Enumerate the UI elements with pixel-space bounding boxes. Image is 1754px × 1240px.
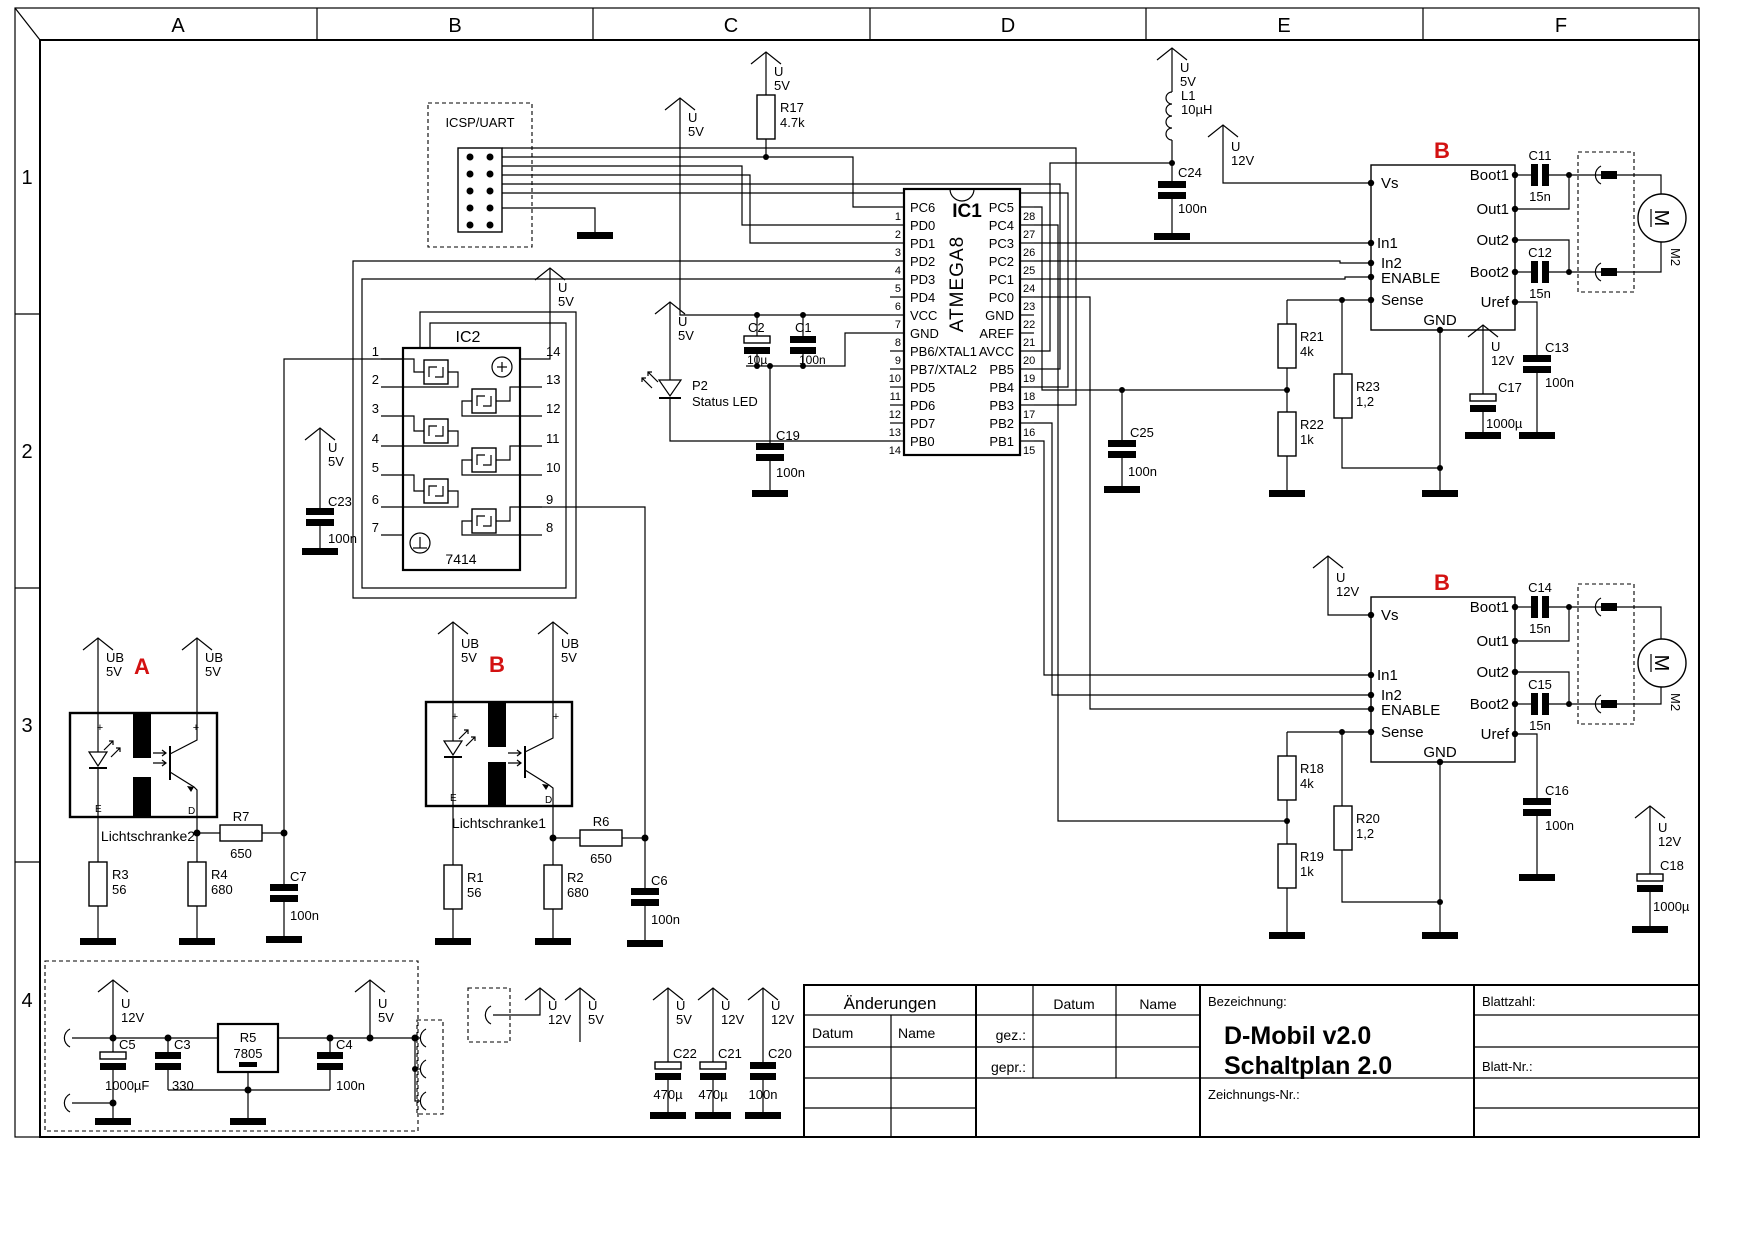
ic1-part: ATMEGA8 [947, 236, 968, 332]
svg-text:AVCC: AVCC [979, 344, 1014, 359]
tb-zeichnungs-nr: Zeichnungs-Nr.: [1208, 1087, 1300, 1102]
svg-text:UB: UB [461, 636, 479, 651]
svg-text:27: 27 [1023, 229, 1035, 241]
r23-value: 1,2 [1356, 394, 1374, 409]
svg-text:U: U [548, 998, 557, 1013]
driver-upper-tag: B [1434, 138, 1450, 163]
svg-text:R5: R5 [240, 1030, 257, 1045]
svg-text:PB0: PB0 [910, 434, 935, 449]
svg-text:U: U [1231, 139, 1240, 154]
c19-value: 100n [776, 465, 805, 480]
svg-text:5V: 5V [676, 1012, 692, 1027]
driver-lower-tag: B [1434, 570, 1450, 595]
svg-text:Uref: Uref [1481, 726, 1510, 743]
svg-text:12: 12 [546, 401, 560, 416]
svg-text:5V: 5V [328, 454, 344, 469]
c19-ref: C19 [776, 428, 800, 443]
svg-text:In1: In1 [1377, 235, 1398, 252]
tb-blatt-nr: Blatt-Nr.: [1482, 1059, 1533, 1074]
svg-text:C5: C5 [119, 1037, 136, 1052]
p2-label: Status LED [692, 394, 758, 409]
c12-ref: C12 [1528, 245, 1552, 260]
svg-text:PD7: PD7 [910, 416, 935, 431]
svg-text:PD2: PD2 [910, 254, 935, 269]
c24-value: 100n [1178, 201, 1207, 216]
ruler-col-c: C [724, 15, 738, 37]
svg-text:5V: 5V [561, 650, 577, 665]
svg-text:C21: C21 [718, 1046, 742, 1061]
c24-capacitor: C24 100n [1154, 165, 1207, 240]
r7-ref: R7 [233, 809, 250, 824]
l1-inductor: U 5V L1 10µH [1157, 48, 1212, 181]
svg-text:14: 14 [889, 445, 901, 457]
svg-text:11: 11 [546, 431, 560, 446]
svg-text:1: 1 [372, 344, 379, 359]
r3-ref: R3 [112, 867, 129, 882]
svg-text:16: 16 [1023, 427, 1035, 439]
output-connector-1 [420, 1029, 426, 1047]
r5-7805-regulator: R5 7805 [218, 1024, 278, 1125]
lichtschranke1: UB 5V UB 5V B + + E D Lichtschranke1 R6 … [426, 622, 680, 947]
svg-text:22: 22 [1023, 319, 1035, 331]
svg-text:C4: C4 [336, 1037, 353, 1052]
r7-value: 650 [230, 846, 252, 861]
ic2-ref: IC2 [456, 329, 481, 346]
svg-text:5V: 5V [558, 294, 574, 309]
svg-text:PC0: PC0 [989, 290, 1014, 305]
c6-value: 100n [651, 912, 680, 927]
vcc-5v-arrow: U 5V [665, 98, 704, 139]
svg-text:U: U [328, 440, 337, 455]
svg-text:U: U [688, 110, 697, 125]
svg-text:Sense: Sense [1381, 724, 1424, 741]
svg-text:PD5: PD5 [910, 380, 935, 395]
svg-text:Boot2: Boot2 [1470, 696, 1509, 713]
svg-text:U: U [771, 998, 780, 1013]
r17-ref: R17 [780, 100, 804, 115]
svg-text:M: M [1650, 655, 1672, 672]
svg-text:PC5: PC5 [989, 200, 1014, 215]
section-a-label: A [134, 654, 150, 679]
svg-text:9: 9 [895, 355, 901, 367]
svg-text:E: E [95, 804, 102, 815]
c13-value: 100n [1545, 375, 1574, 390]
c23-value: 100n [328, 531, 357, 546]
ic1-atmega8: IC1 ATMEGA8 PC61 PD02 PD13 PD24 PD35 PD4… [889, 189, 1036, 457]
svg-text:PB1: PB1 [989, 434, 1014, 449]
r22-ref: R22 [1300, 417, 1324, 432]
lichtschranke1-label: Lichtschranke1 [452, 815, 546, 831]
c6-ref: C6 [651, 873, 668, 888]
svg-text:PD6: PD6 [910, 398, 935, 413]
c18-filter: U 12V C18 1000µ [1632, 806, 1690, 933]
svg-text:12V: 12V [771, 1012, 794, 1027]
svg-text:3: 3 [895, 247, 901, 259]
svg-text:2: 2 [372, 372, 379, 387]
svg-text:14: 14 [546, 344, 560, 359]
svg-text:24: 24 [1023, 283, 1035, 295]
svg-text:C3: C3 [174, 1037, 191, 1052]
svg-text:D: D [545, 795, 552, 806]
ruler-col-b: B [448, 15, 461, 37]
c11-value: 15n [1529, 189, 1551, 204]
svg-text:21: 21 [1023, 337, 1035, 349]
svg-text:PC6: PC6 [910, 200, 935, 215]
svg-text:Out1: Out1 [1476, 633, 1509, 650]
c16-ref: C16 [1545, 783, 1569, 798]
motor-m2-lower: M M2 [1638, 639, 1686, 711]
svg-text:In1: In1 [1377, 667, 1398, 684]
svg-text:12V: 12V [721, 1012, 744, 1027]
svg-text:Uref: Uref [1481, 294, 1510, 311]
svg-text:U: U [558, 280, 567, 295]
svg-text:+: + [193, 722, 199, 734]
c24-ref: C24 [1178, 165, 1202, 180]
svg-text:U: U [1180, 60, 1189, 75]
ruler-row-4: 4 [21, 990, 32, 1012]
c3-capacitor: C3 330 [155, 1037, 194, 1093]
tb-datum-mid: Datum [1053, 996, 1094, 1012]
svg-text:PB7/XTAL2: PB7/XTAL2 [910, 362, 977, 377]
v5-label: 5V [774, 78, 790, 93]
svg-text:1: 1 [895, 211, 901, 223]
svg-text:U: U [676, 998, 685, 1013]
junction-dots [110, 154, 1573, 1107]
svg-text:13: 13 [546, 372, 560, 387]
svg-text:PB6/XTAL1: PB6/XTAL1 [910, 344, 977, 359]
tb-aenderungen: Änderungen [844, 994, 937, 1013]
c14-ref: C14 [1528, 580, 1552, 595]
svg-text:VCC: VCC [910, 308, 937, 323]
svg-text:12V: 12V [1658, 834, 1681, 849]
r2-ref: R2 [567, 870, 584, 885]
svg-text:PC4: PC4 [989, 218, 1014, 233]
svg-text:M2: M2 [1668, 693, 1683, 711]
c18-value: 1000µ [1653, 899, 1690, 914]
r22-value: 1k [1300, 432, 1314, 447]
p2-ref: P2 [692, 378, 708, 393]
ruler-col-d: D [1001, 15, 1015, 37]
svg-text:6: 6 [372, 492, 379, 507]
svg-text:Out1: Out1 [1476, 201, 1509, 218]
ruler-col-f: F [1555, 15, 1567, 37]
tb-gez: gez.: [996, 1027, 1026, 1043]
c25-filter: C25 100n [1104, 390, 1157, 493]
svg-text:19: 19 [1023, 373, 1035, 385]
svg-text:PC1: PC1 [989, 272, 1014, 287]
svg-text:Out2: Out2 [1476, 232, 1509, 249]
svg-text:6: 6 [895, 301, 901, 313]
title-block: Änderungen Datum Name gez.: gepr.: Datum… [804, 985, 1699, 1137]
motor-driver-upper: U 12V B Vs In1 In2 ENABLE Sense Boot1 Ou… [1208, 125, 1686, 497]
svg-text:U: U [1491, 339, 1500, 354]
r20-value: 1,2 [1356, 826, 1374, 841]
motor-driver-lower: U 12V B Vs In1 In2 ENABLE Sense Boot1 Ou… [1269, 556, 1686, 939]
c2-capacitor: C2 10µ [744, 320, 770, 367]
r1-value: 56 [467, 885, 481, 900]
svg-text:330: 330 [172, 1078, 194, 1093]
svg-text:PD0: PD0 [910, 218, 935, 233]
svg-text:20: 20 [1023, 355, 1035, 367]
svg-text:5V: 5V [378, 1010, 394, 1025]
tb-bezeichnung: Bezeichnung: [1208, 994, 1287, 1009]
svg-text:ENABLE: ENABLE [1381, 270, 1440, 287]
svg-text:AREF: AREF [979, 326, 1014, 341]
r3-value: 56 [112, 882, 126, 897]
c7-ref: C7 [290, 869, 307, 884]
svg-text:C20: C20 [768, 1046, 792, 1061]
c11-ref: C11 [1529, 148, 1552, 163]
svg-text:2: 2 [895, 229, 901, 241]
input-connector-2 [64, 1094, 70, 1112]
svg-text:Boot1: Boot1 [1470, 599, 1509, 616]
svg-text:PB2: PB2 [989, 416, 1014, 431]
svg-text:100n: 100n [336, 1078, 365, 1093]
power-supply: U 12V C5 1000µF C3 330 R5 7805 C4 [45, 961, 443, 1131]
gnd-symbol [752, 490, 788, 497]
svg-text:PD1: PD1 [910, 236, 935, 251]
icsp-label: ICSP/UART [445, 115, 514, 130]
r23-ref: R23 [1356, 379, 1380, 394]
input-connector-1 [64, 1029, 70, 1047]
svg-text:Boot2: Boot2 [1470, 264, 1509, 281]
svg-text:5V: 5V [588, 1012, 604, 1027]
svg-text:5V: 5V [205, 664, 221, 679]
c13-ref: C13 [1545, 340, 1569, 355]
svg-text:12V: 12V [1491, 353, 1514, 368]
r20-ref: R20 [1356, 811, 1380, 826]
svg-text:3: 3 [372, 401, 379, 416]
ic2-part: 7414 [445, 551, 476, 567]
c23-ref: C23 [328, 494, 352, 509]
lichtschranke2-label: Lichtschranke2 [101, 828, 195, 844]
svg-text:U: U [1658, 820, 1667, 835]
svg-text:U: U [121, 996, 130, 1011]
svg-text:4: 4 [895, 265, 901, 277]
svg-text:ENABLE: ENABLE [1381, 702, 1440, 719]
aux-connector: U 12V U 5V [468, 988, 604, 1042]
c21-capacitor: U 12V C21 470µ [695, 988, 744, 1119]
c1-ref: C1 [795, 320, 812, 335]
svg-text:7: 7 [372, 520, 379, 535]
svg-text:M2: M2 [1668, 248, 1683, 266]
c17-filter: U 12V C17 1000µ [1465, 325, 1523, 439]
section-b-label: B [489, 652, 505, 677]
svg-text:15: 15 [1023, 445, 1035, 457]
r18-value: 4k [1300, 776, 1314, 791]
status-led: U 5V P2 Status LED [642, 302, 758, 409]
schematic-page: A B C D E F 1 2 3 4 ICSP/UART [0, 0, 1754, 1240]
output-connector-2 [420, 1060, 426, 1078]
c25-value: 100n [1128, 464, 1157, 479]
svg-text:U: U [678, 314, 687, 329]
c2-ref: C2 [748, 320, 765, 335]
svg-text:PB5: PB5 [989, 362, 1014, 377]
r4-value: 680 [211, 882, 233, 897]
svg-text:PB4: PB4 [989, 380, 1014, 395]
svg-text:11: 11 [890, 391, 901, 403]
schematic-canvas: A B C D E F 1 2 3 4 ICSP/UART [0, 0, 1754, 1240]
c12-value: 15n [1529, 286, 1551, 301]
svg-text:12V: 12V [1231, 153, 1254, 168]
svg-text:GND: GND [985, 308, 1014, 323]
u-label: U [774, 64, 783, 79]
r21-ref: R21 [1300, 329, 1324, 344]
svg-text:5: 5 [372, 460, 379, 475]
svg-text:9: 9 [546, 492, 553, 507]
c18-ref: C18 [1660, 858, 1684, 873]
r1-ref: R1 [467, 870, 484, 885]
c5-capacitor: C5 1000µF [95, 1037, 149, 1125]
svg-text:UB: UB [561, 636, 579, 651]
r21-value: 4k [1300, 344, 1314, 359]
r6-value: 650 [590, 851, 612, 866]
lichtschranke2: UB 5V UB 5V A + + E D Lichtschranke2 R7 … [70, 638, 319, 945]
r19-ref: R19 [1300, 849, 1324, 864]
svg-text:5V: 5V [106, 664, 122, 679]
c17-value: 1000µ [1486, 416, 1523, 431]
svg-text:U: U [378, 996, 387, 1011]
c22-capacitor: U 5V C22 470µ [650, 988, 697, 1119]
svg-text:PB3: PB3 [989, 398, 1014, 413]
svg-text:7805: 7805 [234, 1046, 263, 1061]
r17-pullup: U 5V R17 4.7k [751, 52, 805, 139]
c4-capacitor: C4 100n [317, 1037, 365, 1093]
c1-capacitor: C1 100n [790, 320, 826, 367]
svg-text:28: 28 [1023, 211, 1035, 223]
svg-text:Vs: Vs [1381, 607, 1399, 624]
svg-text:10: 10 [546, 460, 560, 475]
svg-text:E: E [450, 793, 457, 804]
ruler-row-3: 3 [21, 715, 32, 737]
svg-text:Sense: Sense [1381, 292, 1424, 309]
svg-text:5V: 5V [678, 328, 694, 343]
aux-connector-pin [485, 1006, 491, 1024]
svg-text:GND: GND [910, 326, 939, 341]
output-connector-3 [420, 1092, 426, 1110]
svg-text:Boot1: Boot1 [1470, 167, 1509, 184]
r17-value: 4.7k [780, 115, 805, 130]
c16-value: 100n [1545, 818, 1574, 833]
svg-text:U: U [1336, 570, 1345, 585]
tb-name-mid: Name [1139, 996, 1177, 1012]
svg-text:U: U [721, 998, 730, 1013]
svg-text:17: 17 [1023, 409, 1035, 421]
ic1-ref: IC1 [952, 201, 982, 222]
svg-text:5V: 5V [688, 124, 704, 139]
svg-text:26: 26 [1023, 247, 1035, 259]
r19-value: 1k [1300, 864, 1314, 879]
ruler-col-a: A [171, 15, 185, 37]
ruler-row-1: 1 [21, 167, 32, 189]
svg-text:8: 8 [546, 520, 553, 535]
tb-name-left: Name [898, 1025, 936, 1041]
c15-value: 15n [1529, 718, 1551, 733]
tb-blattzahl: Blattzahl: [1482, 994, 1535, 1009]
c17-ref: C17 [1498, 380, 1522, 395]
l1-value: 10µH [1181, 102, 1212, 117]
r4-ref: R4 [211, 867, 228, 882]
svg-text:PD4: PD4 [910, 290, 935, 305]
svg-text:5: 5 [895, 283, 901, 295]
r18-ref: R18 [1300, 761, 1324, 776]
svg-text:D: D [188, 806, 195, 817]
ruler-col-e: E [1277, 15, 1290, 37]
ruler-row-2: 2 [21, 441, 32, 463]
svg-text:C22: C22 [673, 1046, 697, 1061]
c19-capacitor: C19 100n [752, 428, 805, 497]
svg-text:GND: GND [1423, 312, 1457, 329]
svg-text:5V: 5V [461, 650, 477, 665]
ic2-7414: IC2 7414 1 2 3 4 5 6 7 14 13 12 11 10 9 … [372, 268, 574, 570]
r6-ref: R6 [593, 814, 610, 829]
c23-capacitor: U 5V C23 100n [302, 428, 357, 555]
svg-text:5V: 5V [1180, 74, 1196, 89]
c20-capacitor: U 12V C20 100n [745, 988, 794, 1119]
svg-text:PC3: PC3 [989, 236, 1014, 251]
svg-text:7: 7 [895, 319, 901, 331]
svg-text:18: 18 [1023, 391, 1035, 403]
svg-text:25: 25 [1023, 265, 1035, 277]
svg-text:PC2: PC2 [989, 254, 1014, 269]
svg-text:23: 23 [1023, 301, 1035, 313]
tb-title-2: Schaltplan 2.0 [1224, 1052, 1392, 1080]
svg-text:8: 8 [895, 337, 901, 349]
c25-ref: C25 [1130, 425, 1154, 440]
motor-m2-upper: M M2 [1638, 194, 1686, 266]
svg-text:GND: GND [1423, 744, 1457, 761]
svg-text:12V: 12V [121, 1010, 144, 1025]
c14-value: 15n [1529, 621, 1551, 636]
svg-text:1000µF: 1000µF [105, 1078, 149, 1093]
svg-text:12V: 12V [1336, 584, 1359, 599]
svg-text:12V: 12V [548, 1012, 571, 1027]
led-emission-arrows [642, 372, 658, 388]
svg-text:UB: UB [205, 650, 223, 665]
svg-text:+: + [553, 711, 559, 723]
svg-text:12: 12 [889, 409, 901, 421]
tb-datum-left: Datum [812, 1025, 853, 1041]
tb-title-1: D-Mobil v2.0 [1224, 1022, 1371, 1050]
icsp-gnd [577, 232, 613, 239]
svg-text:PD3: PD3 [910, 272, 935, 287]
svg-text:UB: UB [106, 650, 124, 665]
svg-text:4: 4 [372, 431, 379, 446]
l1-ref: L1 [1181, 88, 1195, 103]
svg-text:10: 10 [889, 373, 901, 385]
tb-gepr: gepr.: [991, 1059, 1026, 1075]
r2-value: 680 [567, 885, 589, 900]
svg-text:Vs: Vs [1381, 175, 1399, 192]
svg-text:Out2: Out2 [1476, 664, 1509, 681]
svg-text:13: 13 [889, 427, 901, 439]
svg-text:U: U [588, 998, 597, 1013]
c15-ref: C15 [1528, 677, 1552, 692]
svg-text:M: M [1650, 210, 1672, 227]
c7-value: 100n [290, 908, 319, 923]
